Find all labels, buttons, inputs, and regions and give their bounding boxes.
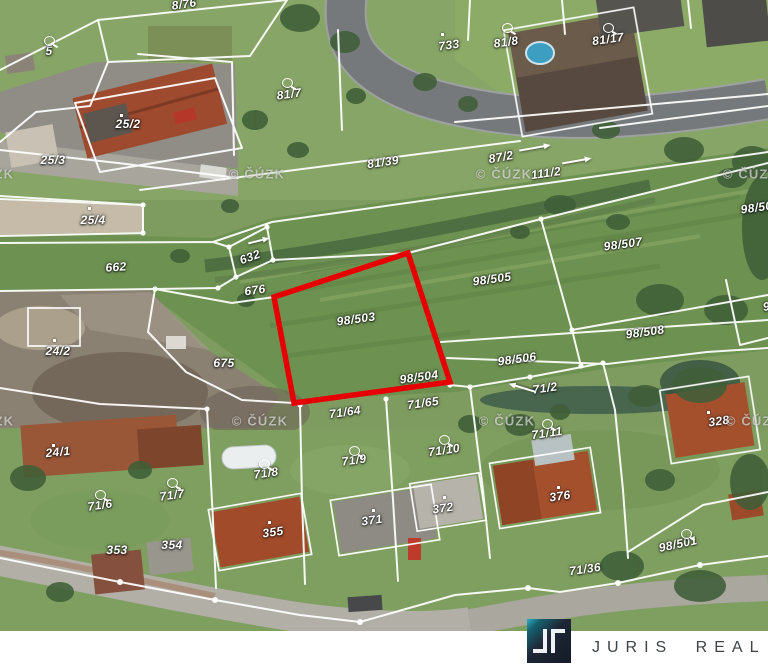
brand-name: JURIS REAL (592, 639, 765, 657)
logo-glyph-j (533, 629, 547, 653)
aerial-map-canvas (0, 0, 768, 631)
branding-bar: JURIS REAL (0, 631, 768, 671)
listing-map-image: 8/76525/225/381/773381/881/1781/3987/211… (0, 0, 768, 671)
juris-real-logo-mark (527, 619, 571, 663)
aerial-map: 8/76525/225/381/773381/881/1781/3987/211… (0, 0, 768, 631)
logo-glyph-r (551, 629, 565, 653)
